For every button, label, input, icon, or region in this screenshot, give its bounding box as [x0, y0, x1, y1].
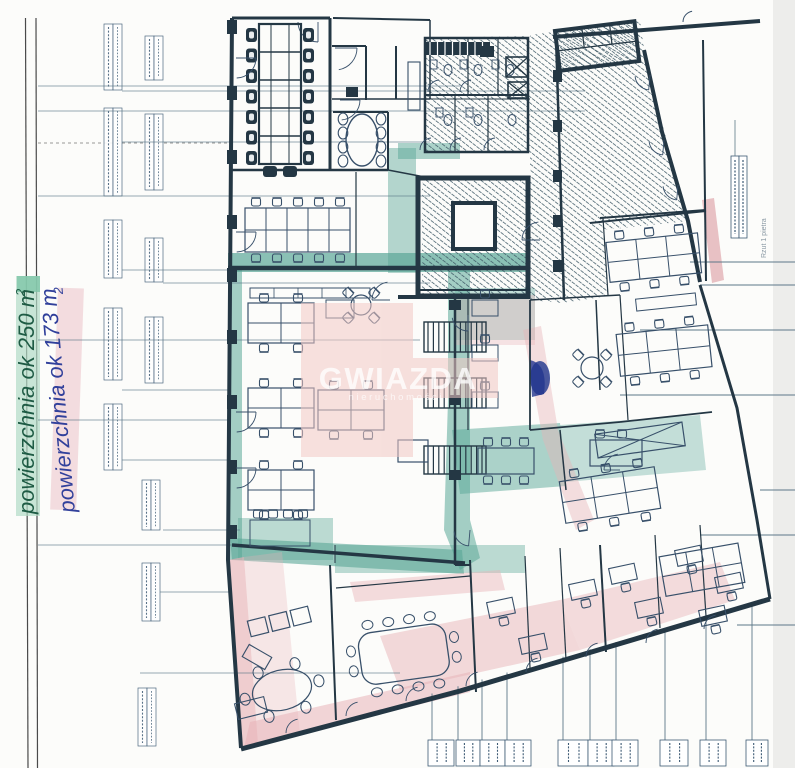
- svg-text:n i e r u c h o m o ś c i: n i e r u c h o m o ś c i: [349, 392, 442, 403]
- svg-text:Rzut 1 pietra: Rzut 1 pietra: [761, 218, 768, 258]
- svg-text:GWIAZDA: GWIAZDA: [319, 361, 478, 396]
- svg-text:powierzchnia ok 250 m: powierzchnia ok 250 m: [14, 289, 39, 515]
- svg-text:2: 2: [13, 288, 28, 297]
